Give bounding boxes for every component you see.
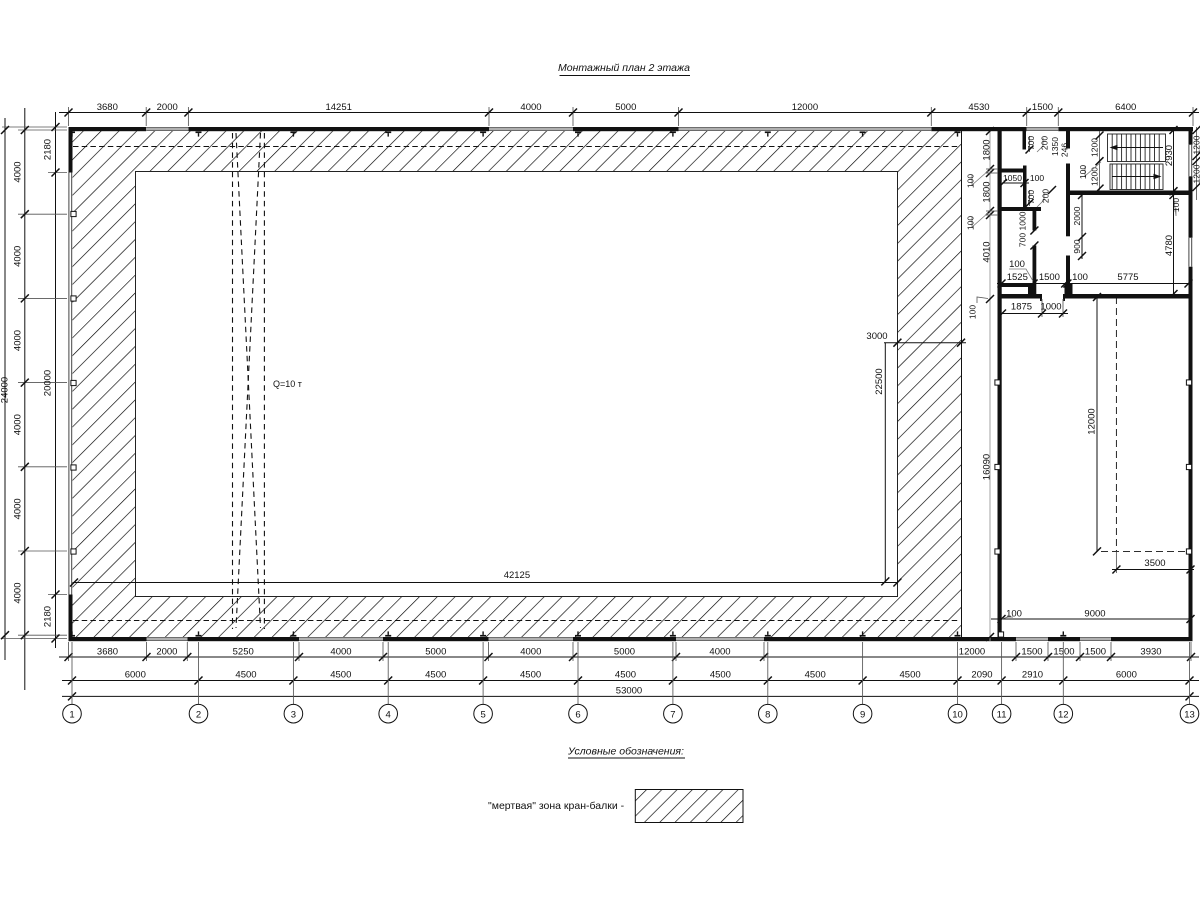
svg-text:53000: 53000 xyxy=(616,686,642,697)
svg-text:100: 100 xyxy=(968,305,978,319)
svg-text:3930: 3930 xyxy=(1140,646,1161,657)
svg-text:100: 100 xyxy=(1006,609,1022,620)
svg-text:16090: 16090 xyxy=(982,454,993,480)
svg-text:3000: 3000 xyxy=(866,331,887,342)
svg-text:2930: 2930 xyxy=(1164,145,1175,166)
svg-text:1800: 1800 xyxy=(982,139,993,160)
svg-text:Условные обозначения:: Условные обозначения: xyxy=(567,746,684,758)
svg-text:100: 100 xyxy=(966,216,976,230)
svg-text:100: 100 xyxy=(966,174,976,188)
svg-text:4780: 4780 xyxy=(1164,235,1175,256)
svg-text:700: 700 xyxy=(1026,190,1036,204)
svg-text:1200: 1200 xyxy=(1192,135,1200,154)
svg-text:11: 11 xyxy=(997,710,1007,721)
svg-text:100: 100 xyxy=(1078,165,1088,179)
svg-text:12000: 12000 xyxy=(792,102,818,113)
svg-text:10: 10 xyxy=(952,710,963,721)
svg-text:4500: 4500 xyxy=(425,669,446,680)
svg-text:3680: 3680 xyxy=(97,646,118,657)
svg-text:12000: 12000 xyxy=(1087,408,1098,434)
svg-text:24000: 24000 xyxy=(0,377,11,403)
svg-text:4000: 4000 xyxy=(12,246,23,267)
svg-text:1500: 1500 xyxy=(1085,646,1106,657)
svg-text:4000: 4000 xyxy=(12,161,23,182)
svg-text:1525: 1525 xyxy=(1007,272,1028,283)
svg-text:12000: 12000 xyxy=(959,646,985,657)
svg-text:2000: 2000 xyxy=(157,102,178,113)
svg-text:1200: 1200 xyxy=(1090,167,1100,186)
svg-text:700: 700 xyxy=(1018,233,1028,247)
svg-text:6000: 6000 xyxy=(125,669,146,680)
svg-text:4000: 4000 xyxy=(709,646,730,657)
svg-text:1: 1 xyxy=(69,710,74,721)
svg-text:100: 100 xyxy=(1171,198,1181,212)
svg-text:700: 700 xyxy=(1026,136,1036,150)
svg-text:"мертвая" зона кран-балки -: "мертвая" зона кран-балки - xyxy=(488,800,625,812)
svg-text:4000: 4000 xyxy=(520,646,541,657)
svg-text:5250: 5250 xyxy=(233,646,254,657)
svg-text:100: 100 xyxy=(1072,272,1088,283)
svg-text:2: 2 xyxy=(196,710,201,721)
svg-text:200: 200 xyxy=(1040,136,1050,150)
svg-text:6000: 6000 xyxy=(1116,669,1137,680)
svg-text:4000: 4000 xyxy=(520,102,541,113)
svg-text:1350: 1350 xyxy=(1050,137,1060,156)
svg-text:3500: 3500 xyxy=(1144,558,1165,569)
svg-text:2000: 2000 xyxy=(156,646,177,657)
svg-text:1500: 1500 xyxy=(1053,646,1074,657)
svg-text:9: 9 xyxy=(860,710,865,721)
svg-text:2000: 2000 xyxy=(1072,206,1082,225)
svg-text:Монтажный план 2 этажа: Монтажный план 2 этажа xyxy=(558,62,690,74)
svg-text:4500: 4500 xyxy=(710,669,731,680)
svg-text:900: 900 xyxy=(1072,239,1082,253)
svg-text:4000: 4000 xyxy=(12,498,23,519)
svg-text:5: 5 xyxy=(480,710,485,721)
svg-text:4000: 4000 xyxy=(330,646,351,657)
svg-text:1500: 1500 xyxy=(1039,272,1060,283)
svg-text:246: 246 xyxy=(1060,143,1070,157)
svg-text:4500: 4500 xyxy=(900,669,921,680)
svg-text:7: 7 xyxy=(670,710,675,721)
svg-text:1200: 1200 xyxy=(1192,164,1200,183)
svg-text:200: 200 xyxy=(1041,189,1051,203)
svg-text:1000: 1000 xyxy=(1040,302,1061,313)
svg-text:Q=10 т: Q=10 т xyxy=(273,379,302,389)
svg-text:20000: 20000 xyxy=(43,370,54,396)
svg-text:6400: 6400 xyxy=(1115,102,1136,113)
svg-text:4500: 4500 xyxy=(520,669,541,680)
svg-text:5000: 5000 xyxy=(615,102,636,113)
svg-text:1000: 1000 xyxy=(1018,211,1028,230)
svg-text:2090: 2090 xyxy=(971,669,992,680)
svg-text:1050: 1050 xyxy=(1003,173,1022,183)
svg-text:4000: 4000 xyxy=(12,414,23,435)
svg-text:1800: 1800 xyxy=(982,181,993,202)
svg-text:4500: 4500 xyxy=(235,669,256,680)
svg-text:4530: 4530 xyxy=(968,102,989,113)
svg-text:1875: 1875 xyxy=(1011,302,1032,313)
svg-text:2910: 2910 xyxy=(1022,669,1043,680)
svg-text:5000: 5000 xyxy=(614,646,635,657)
svg-text:6: 6 xyxy=(575,710,580,721)
svg-text:3680: 3680 xyxy=(97,102,118,113)
svg-text:4000: 4000 xyxy=(12,330,23,351)
svg-text:13: 13 xyxy=(1184,710,1195,721)
svg-text:12: 12 xyxy=(1058,710,1069,721)
svg-text:4000: 4000 xyxy=(12,583,23,604)
svg-text:4500: 4500 xyxy=(805,669,826,680)
svg-text:3: 3 xyxy=(291,710,296,721)
svg-text:4: 4 xyxy=(386,710,391,721)
svg-text:1200: 1200 xyxy=(1090,138,1100,157)
svg-text:5000: 5000 xyxy=(425,646,446,657)
svg-text:2180: 2180 xyxy=(43,139,54,160)
svg-text:4010: 4010 xyxy=(982,241,993,262)
svg-text:9000: 9000 xyxy=(1084,609,1105,620)
svg-text:4500: 4500 xyxy=(615,669,636,680)
svg-text:22500: 22500 xyxy=(874,368,885,394)
svg-text:100: 100 xyxy=(1009,259,1025,270)
svg-text:2180: 2180 xyxy=(43,606,54,627)
svg-text:100: 100 xyxy=(1030,173,1044,183)
svg-text:14251: 14251 xyxy=(325,102,351,113)
svg-text:1500: 1500 xyxy=(1032,102,1053,113)
svg-text:1500: 1500 xyxy=(1021,646,1042,657)
svg-text:5775: 5775 xyxy=(1117,272,1138,283)
svg-text:8: 8 xyxy=(765,710,770,721)
svg-text:42125: 42125 xyxy=(504,570,530,581)
svg-text:4500: 4500 xyxy=(330,669,351,680)
